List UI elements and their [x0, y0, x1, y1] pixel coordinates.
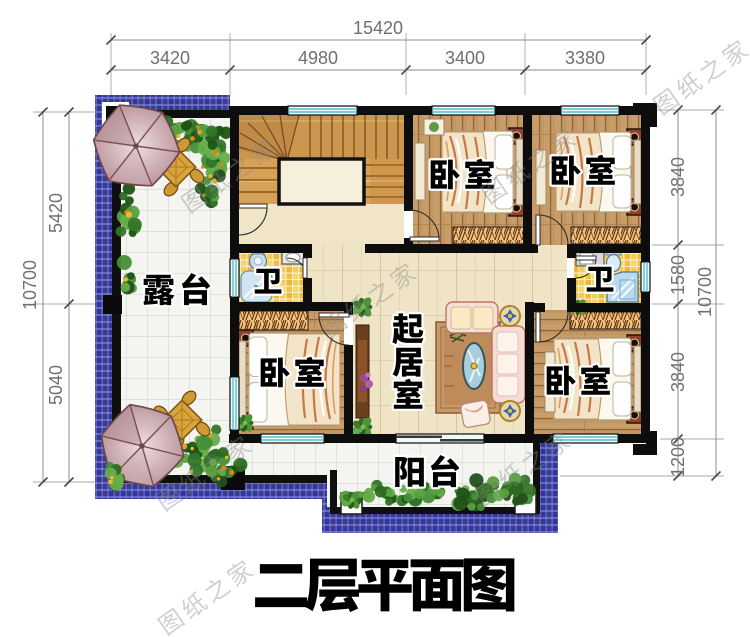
- svg-text:10700: 10700: [20, 260, 40, 310]
- svg-text:1580: 1580: [668, 255, 688, 295]
- svg-text:3420: 3420: [150, 48, 190, 68]
- svg-text:10700: 10700: [695, 267, 715, 317]
- svg-text:15420: 15420: [353, 18, 403, 38]
- svg-text:5420: 5420: [46, 193, 66, 233]
- svg-text:1200: 1200: [668, 437, 688, 477]
- svg-text:4980: 4980: [298, 48, 338, 68]
- svg-text:3400: 3400: [445, 48, 485, 68]
- svg-text:5040: 5040: [46, 365, 66, 405]
- svg-text:3840: 3840: [668, 352, 688, 392]
- svg-text:3840: 3840: [668, 157, 688, 197]
- svg-text:3380: 3380: [565, 48, 605, 68]
